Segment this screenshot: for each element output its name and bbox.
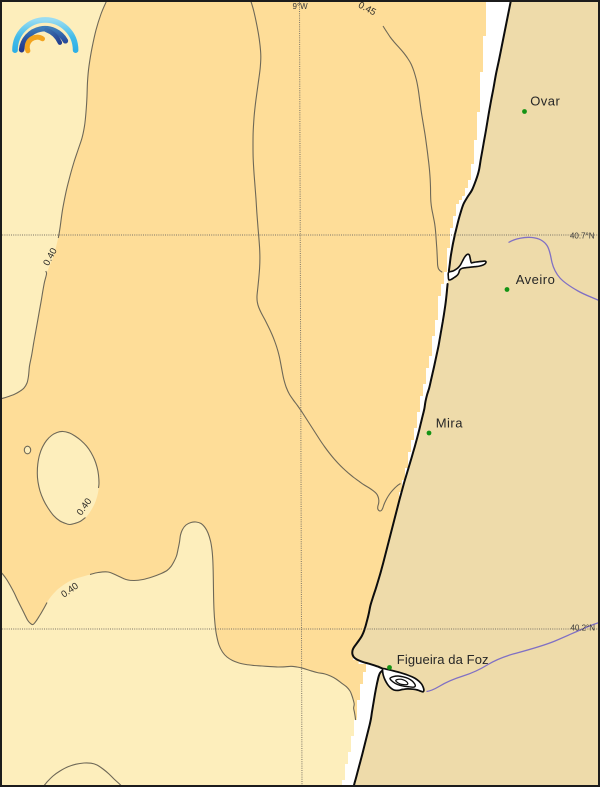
svg-text:40.2°N: 40.2°N (570, 624, 595, 633)
svg-text:9°W: 9°W (293, 2, 309, 11)
svg-text:Mira: Mira (436, 416, 464, 431)
svg-text:Figueira da Foz: Figueira da Foz (397, 652, 489, 667)
svg-text:Ovar: Ovar (530, 94, 560, 109)
svg-text:Aveiro: Aveiro (516, 272, 556, 287)
svg-text:40.7°N: 40.7°N (570, 231, 595, 240)
